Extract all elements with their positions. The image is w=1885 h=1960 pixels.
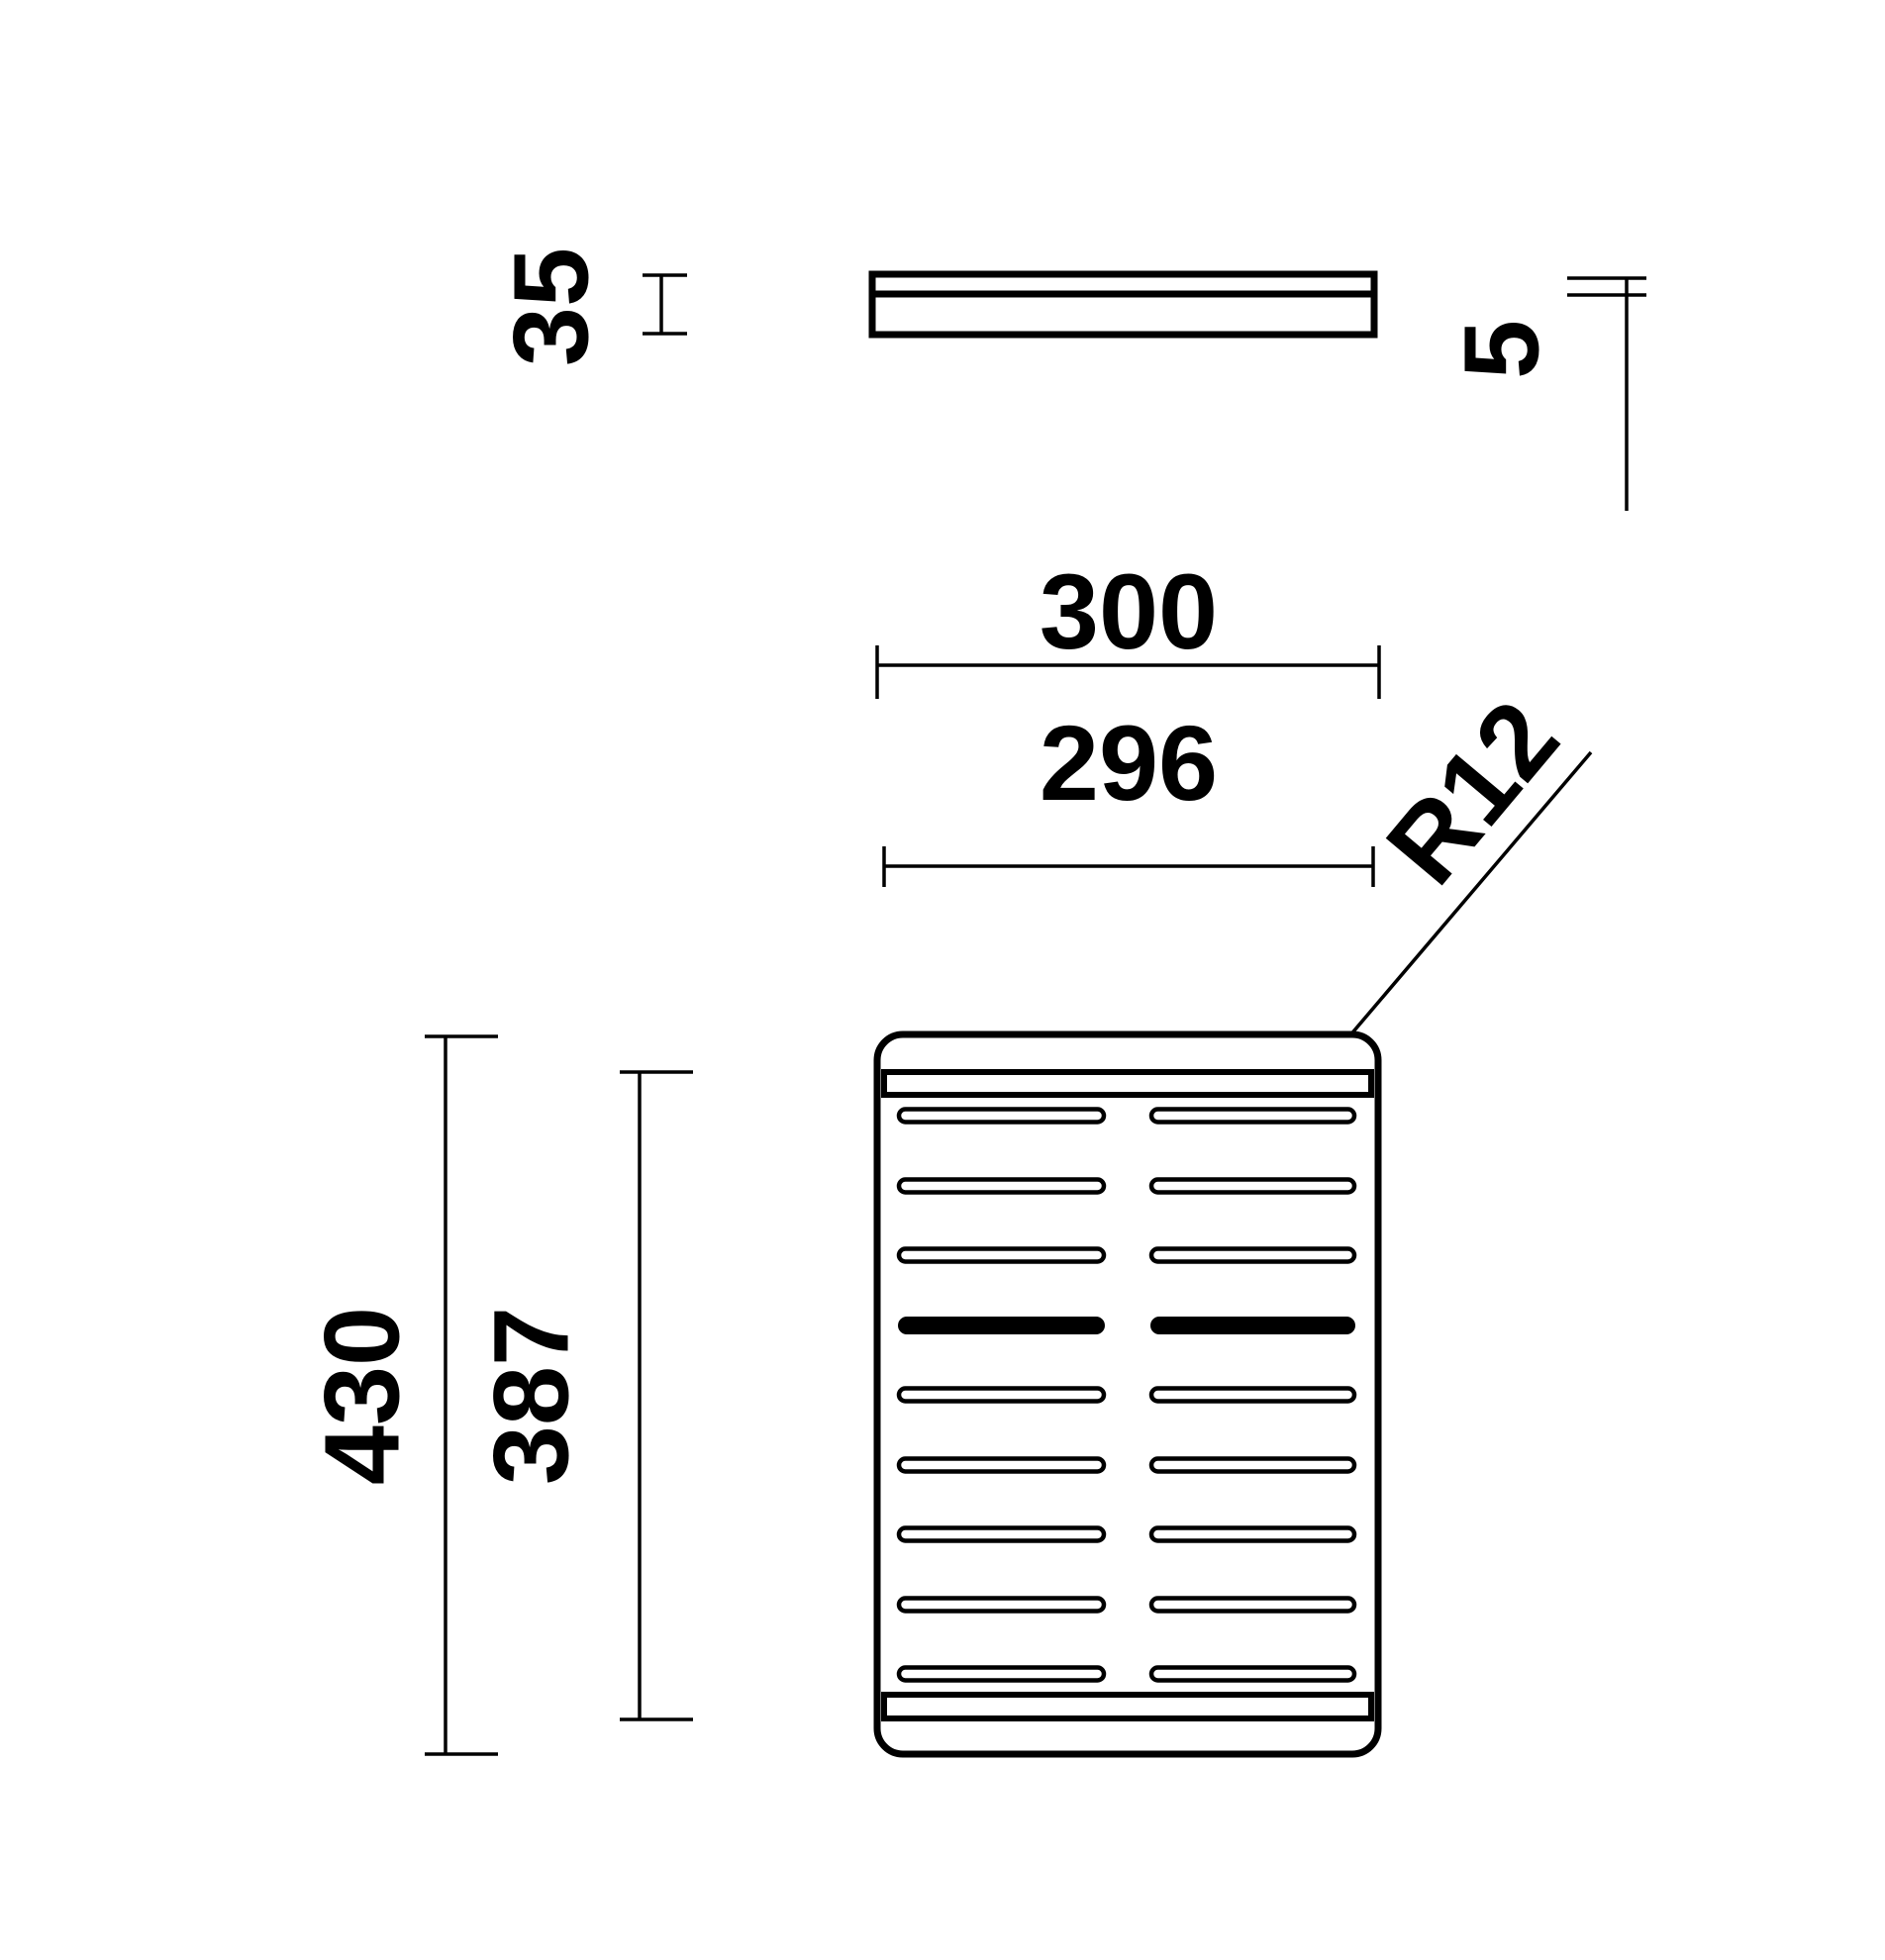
plan-view-top-rail <box>884 1072 1371 1095</box>
side-view-outline <box>872 274 1374 335</box>
technical-drawing: 35 5 300 296 R12 <box>0 0 1885 1960</box>
plan-view <box>877 1034 1378 1754</box>
slot <box>1151 1180 1354 1193</box>
slot <box>1151 1249 1354 1262</box>
slot <box>899 1528 1104 1541</box>
dim-width-inner: 296 <box>884 703 1373 887</box>
side-view <box>872 274 1374 335</box>
slot <box>899 1389 1104 1402</box>
slot <box>1151 1668 1354 1681</box>
dim-length-inner-label: 387 <box>471 1307 591 1485</box>
slot <box>1151 1599 1354 1612</box>
slot <box>1151 1528 1354 1541</box>
slot <box>899 1249 1104 1262</box>
slot <box>899 1180 1104 1193</box>
dim-length-outer: 430 <box>302 1036 499 1754</box>
slot <box>899 1110 1104 1123</box>
dim-width-outer-label: 300 <box>1040 551 1218 671</box>
dim-thickness: 35 <box>491 247 688 366</box>
slot <box>899 1599 1104 1612</box>
slot <box>1151 1459 1354 1472</box>
radius-label: R12 <box>1363 678 1581 906</box>
plan-view-bottom-rail <box>884 1695 1371 1718</box>
slot <box>1151 1389 1354 1402</box>
slot-filled <box>899 1318 1104 1333</box>
dim-length-outer-label: 430 <box>302 1307 422 1485</box>
dim-width-outer: 300 <box>877 551 1379 699</box>
dim-plate-label: 5 <box>1441 320 1561 379</box>
slot-filled <box>1151 1318 1354 1333</box>
dim-length-inner: 387 <box>471 1072 694 1719</box>
slot <box>899 1668 1104 1681</box>
slot <box>1151 1110 1354 1123</box>
slot <box>899 1459 1104 1472</box>
dim-thickness-label: 35 <box>491 247 611 366</box>
drawing-canvas: 35 5 300 296 R12 <box>0 0 1885 1960</box>
dim-plate: 5 <box>1441 278 1647 511</box>
dim-width-inner-label: 296 <box>1040 703 1218 823</box>
